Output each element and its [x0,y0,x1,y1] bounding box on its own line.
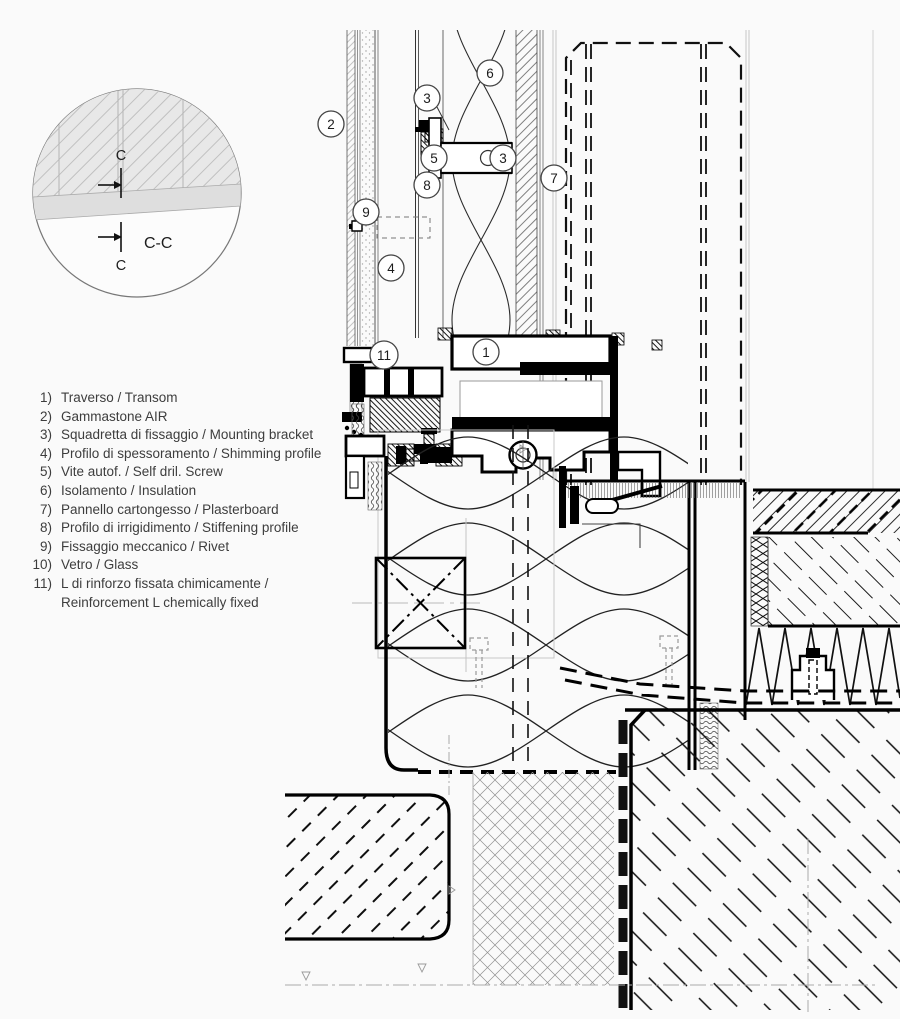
legend-item-9: 9)Fissaggio meccanico / Rivet [26,538,326,557]
edge-insulation-strip [751,537,768,626]
callout-4: 4 [378,255,404,281]
svg-text:1: 1 [482,345,490,360]
left-sill-profile [346,436,384,510]
callout-3b: 3 [490,145,516,171]
callout-5: 5 [421,145,447,171]
lattice-column [473,772,614,985]
gammastone-panel [360,30,375,346]
callout-8: 8 [414,172,440,198]
legend-item-2: 2)Gammastone AIR [26,408,326,427]
anchor-channel-zone [746,628,900,705]
svg-text:3: 3 [423,91,431,106]
callout-11: 11 [370,341,398,369]
svg-text:11: 11 [377,348,391,363]
legend-item-3: 3)Squadretta di fissaggio / Mounting bra… [26,426,326,445]
legend-item-1: 1)Traverso / Transom [26,389,326,408]
section-mark-top: C [116,148,126,164]
legend-item-11: 11)L di rinforzo fissata chimicamente / [26,575,326,594]
legend-item-11-line2: Reinforcement L chemically fixed [26,594,326,613]
section-label: C-C [144,235,172,252]
callout-6: 6 [477,60,503,86]
masonry-wall-lower-right [625,710,900,1010]
legend-item-4: 4)Profilo di spessoramento / Shimming pr… [26,445,326,464]
svg-text:6: 6 [486,66,494,81]
callout-3: 3 [414,85,440,111]
svg-text:4: 4 [387,261,395,276]
svg-text:7: 7 [550,171,558,186]
legend-item-8: 8)Profilo di irrigidimento / Stiffening … [26,519,326,538]
svg-text:9: 9 [362,205,370,220]
structure-beam-band [753,490,900,533]
masonry-block-left [285,795,449,939]
svg-text:2: 2 [327,117,335,132]
svg-text:5: 5 [430,151,438,166]
svg-text:8: 8 [423,178,431,193]
detail-locator-circle: C C C-C [33,85,241,297]
drawing-canvas: 2 3 6 5 3 7 8 9 4 11 1 C C C-C 1)Travers… [0,0,900,1019]
legend: 1)Traverso / Transom 2)Gammastone AIR 3)… [26,389,326,612]
callout-1: 1 [473,339,499,365]
legend-item-5: 5)Vite autof. / Self dril. Screw [26,463,326,482]
legend-item-6: 6)Isolamento / Insulation [26,482,326,501]
svg-text:3: 3 [499,151,507,166]
structure-wall-block [768,537,900,626]
callout-7: 7 [541,165,567,191]
section-mark-bottom: C [116,258,126,274]
legend-item-7: 7)Pannello cartongesso / Plasterboard [26,501,326,520]
plasterboard-band [516,30,537,338]
callout-2: 2 [318,111,344,137]
callout-9: 9 [353,199,379,225]
legend-item-10: 10)Vetro / Glass [26,556,326,575]
